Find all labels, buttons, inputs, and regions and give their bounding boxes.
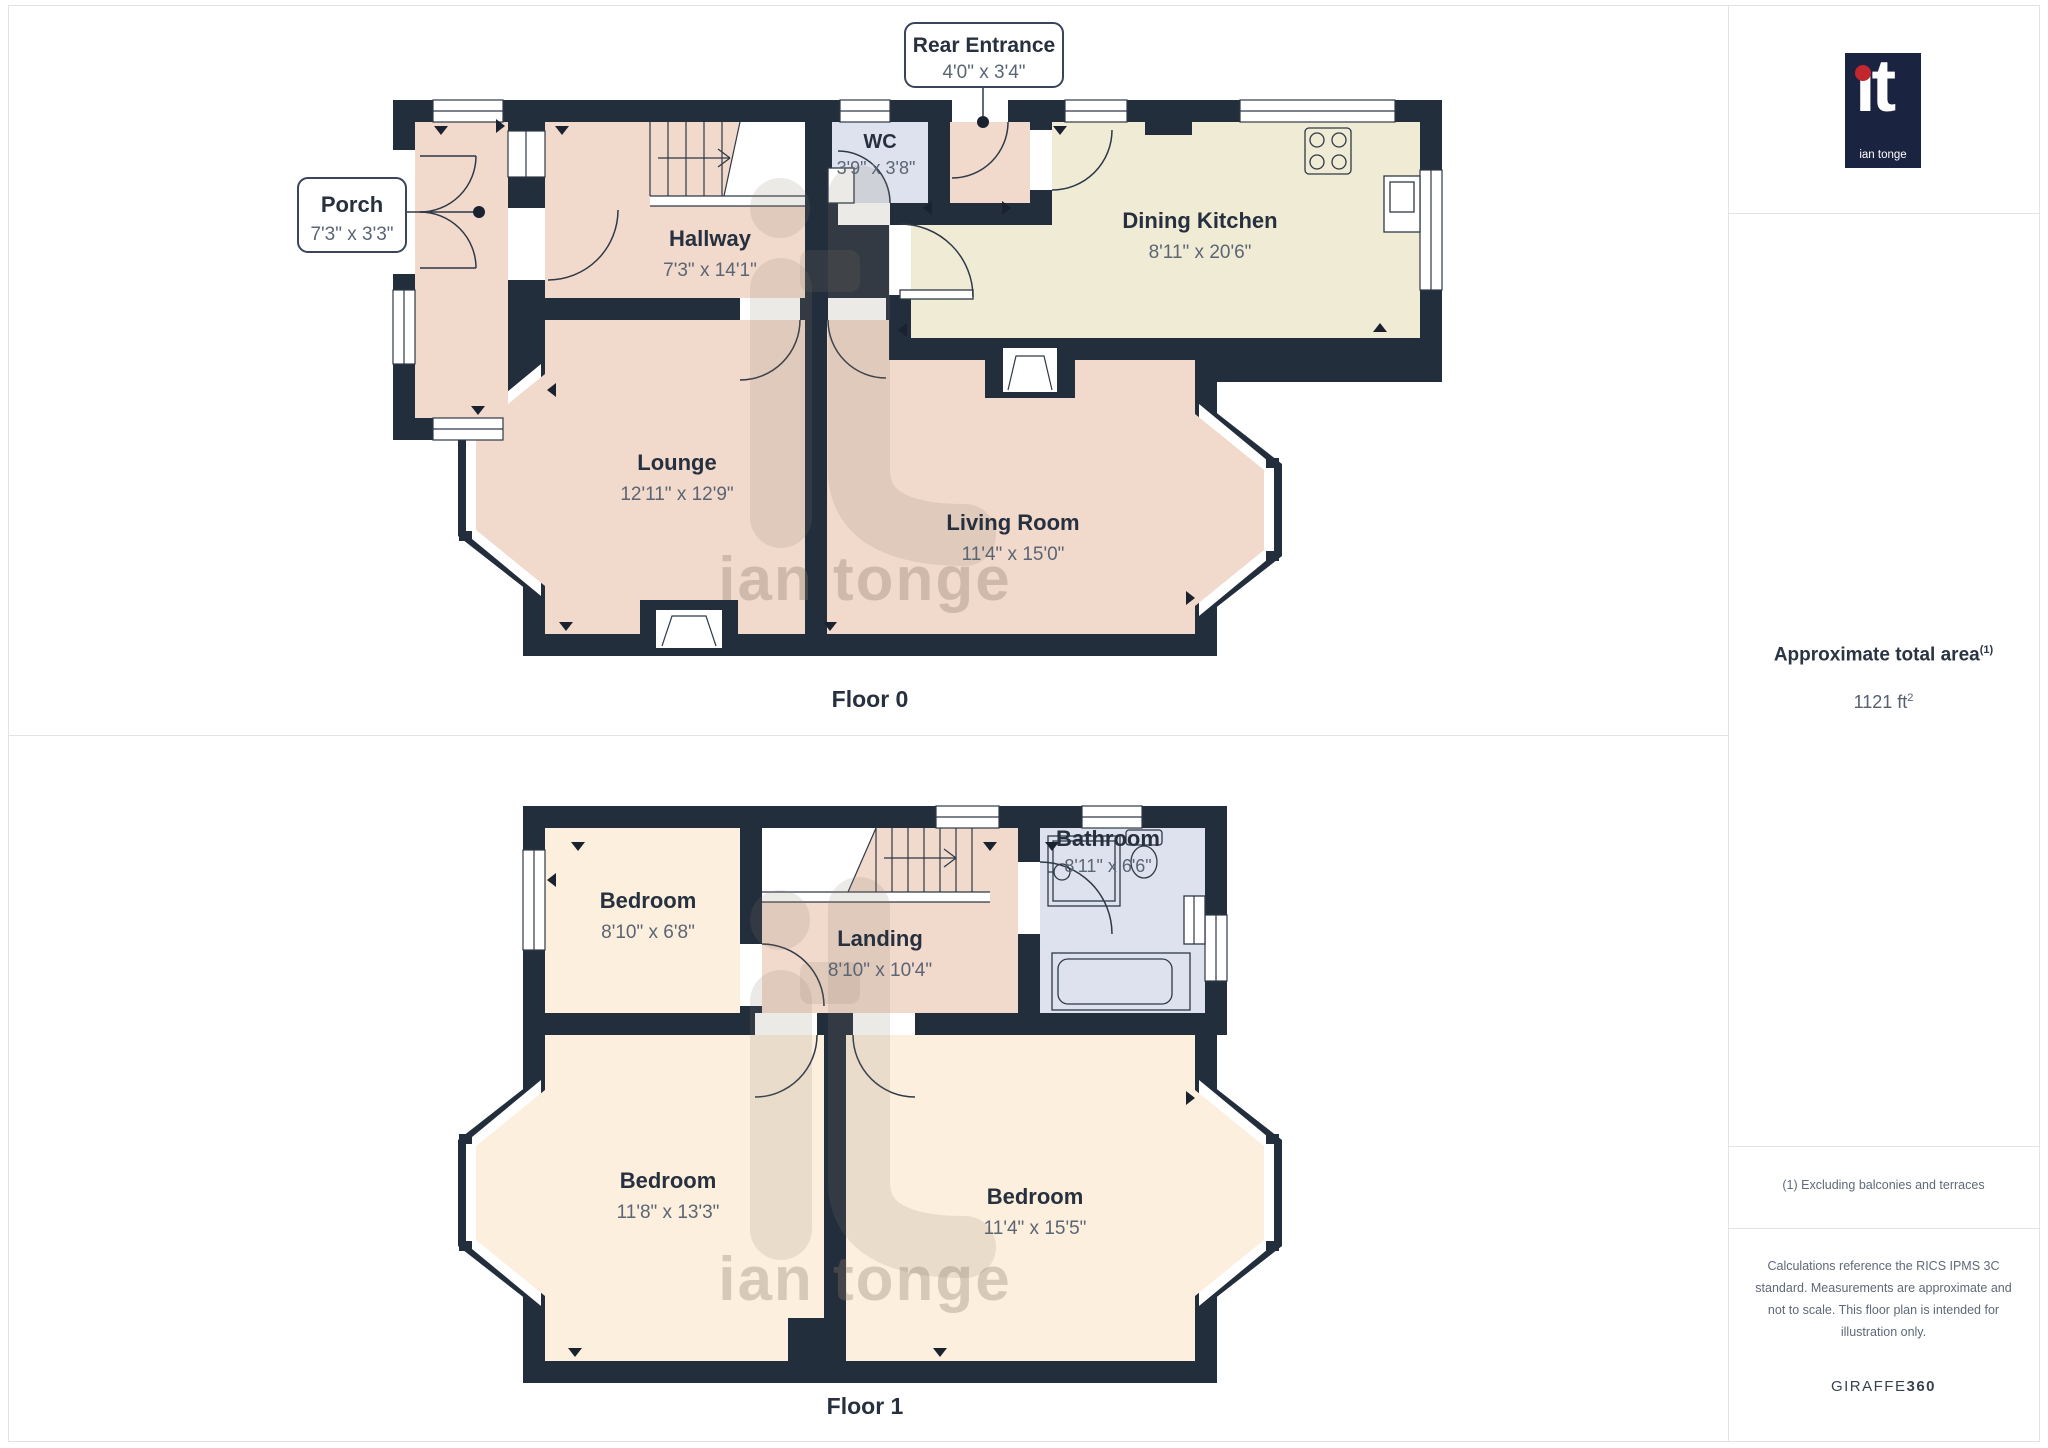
wc-dims: 3'9" x 3'8" [837,158,916,178]
area-value-sup: 2 [1907,692,1913,704]
room-porch [415,122,508,418]
bathroom-dims: 8'11" x 6'6" [1064,856,1151,876]
landing-label: Landing [837,926,923,951]
giraffe360-brand: GIRAFFE360 [1728,1378,2039,1395]
bedroom-right-dims: 11'4" x 15'5" [984,1218,1087,1239]
kitchen-sink-icon [1384,176,1420,232]
bedroom-left-label: Bedroom [620,1168,717,1193]
logo-agency-name: ian tonge [1845,149,1921,161]
area-label-text: Approximate total area [1774,644,1980,665]
hallway-dims: 7'3" x 14'1" [663,260,757,281]
bedroom-small-label: Bedroom [600,888,697,913]
bedroom-left-bay-window [458,1072,545,1314]
landing-dims: 8'10" x 10'4" [828,960,932,981]
sidebar-section-line-3 [1729,1228,2039,1229]
approximate-total-area-value: 1121 ft2 [1728,692,2039,713]
measurements-disclaimer: Calculations reference the RICS IPMS 3C … [1753,1256,2014,1344]
brand-name: GIRAFFE [1831,1378,1907,1395]
floorplan-page: ian tonge Porch 7'3" x 3'3" Rear Entranc… [0,0,2048,1448]
porch-dims: 7'3" x 3'3" [310,224,393,245]
kitchen-chimney-notch [1145,122,1192,135]
brand-suffix: 360 [1906,1378,1936,1395]
sidebar-divider [1728,5,1729,1441]
dining-kitchen-dims: 8'11" x 20'6" [1149,242,1252,263]
rear-entrance-label: Rear Entrance [913,34,1055,57]
porch-label: Porch [321,192,383,217]
logo-it-letters: ıt [1855,49,1892,123]
area-value-text: 1121 ft [1854,692,1908,712]
sidebar-section-line-1 [1729,213,2039,214]
living-room-label: Living Room [946,510,1079,535]
area-label-footnote: (1) [1980,644,1993,656]
rear-entrance-dims: 4'0" x 3'4" [942,62,1025,83]
floor0-plan: ian tonge Porch 7'3" x 3'3" Rear Entranc… [0,0,1728,735]
bedroom-right-label: Bedroom [987,1184,1084,1209]
room-bedroom-small [545,828,740,1013]
sidebar-section-line-2 [1729,1146,2039,1147]
living-room-fireplace [985,338,1075,398]
lounge-label: Lounge [637,450,716,475]
watermark-text-floor1: ian tonge [718,1245,1012,1314]
bathroom-label: Bathroom [1056,826,1160,851]
lounge-dims: 12'11" x 12'9" [620,484,733,505]
living-room-dims: 11'4" x 15'0" [962,544,1065,565]
bedroom-right-bay-window [1195,1072,1282,1314]
living-room-bay-window [1195,396,1282,624]
approximate-total-area-label: Approximate total area(1) [1728,644,2039,666]
excluding-balconies-note: (1) Excluding balconies and terraces [1728,1178,2039,1192]
floor0-caption: Floor 0 [832,686,909,712]
ian-tonge-logo: ıt ian tonge [1845,53,1921,168]
bedroom-left-dims: 11'8" x 13'3" [617,1202,720,1223]
dining-kitchen-label: Dining Kitchen [1122,208,1277,233]
wc-label: WC [863,131,896,153]
floor1-plan: ian tonge Bedroom 8'10" x 6'8" Landing 8… [0,735,1728,1442]
bedroom-left-chimney [788,1318,846,1361]
bedroom-small-dims: 8'10" x 6'8" [601,922,695,943]
hallway-label: Hallway [669,226,752,251]
logo-red-dot-icon [1855,65,1871,81]
floor1-caption: Floor 1 [827,1393,904,1419]
